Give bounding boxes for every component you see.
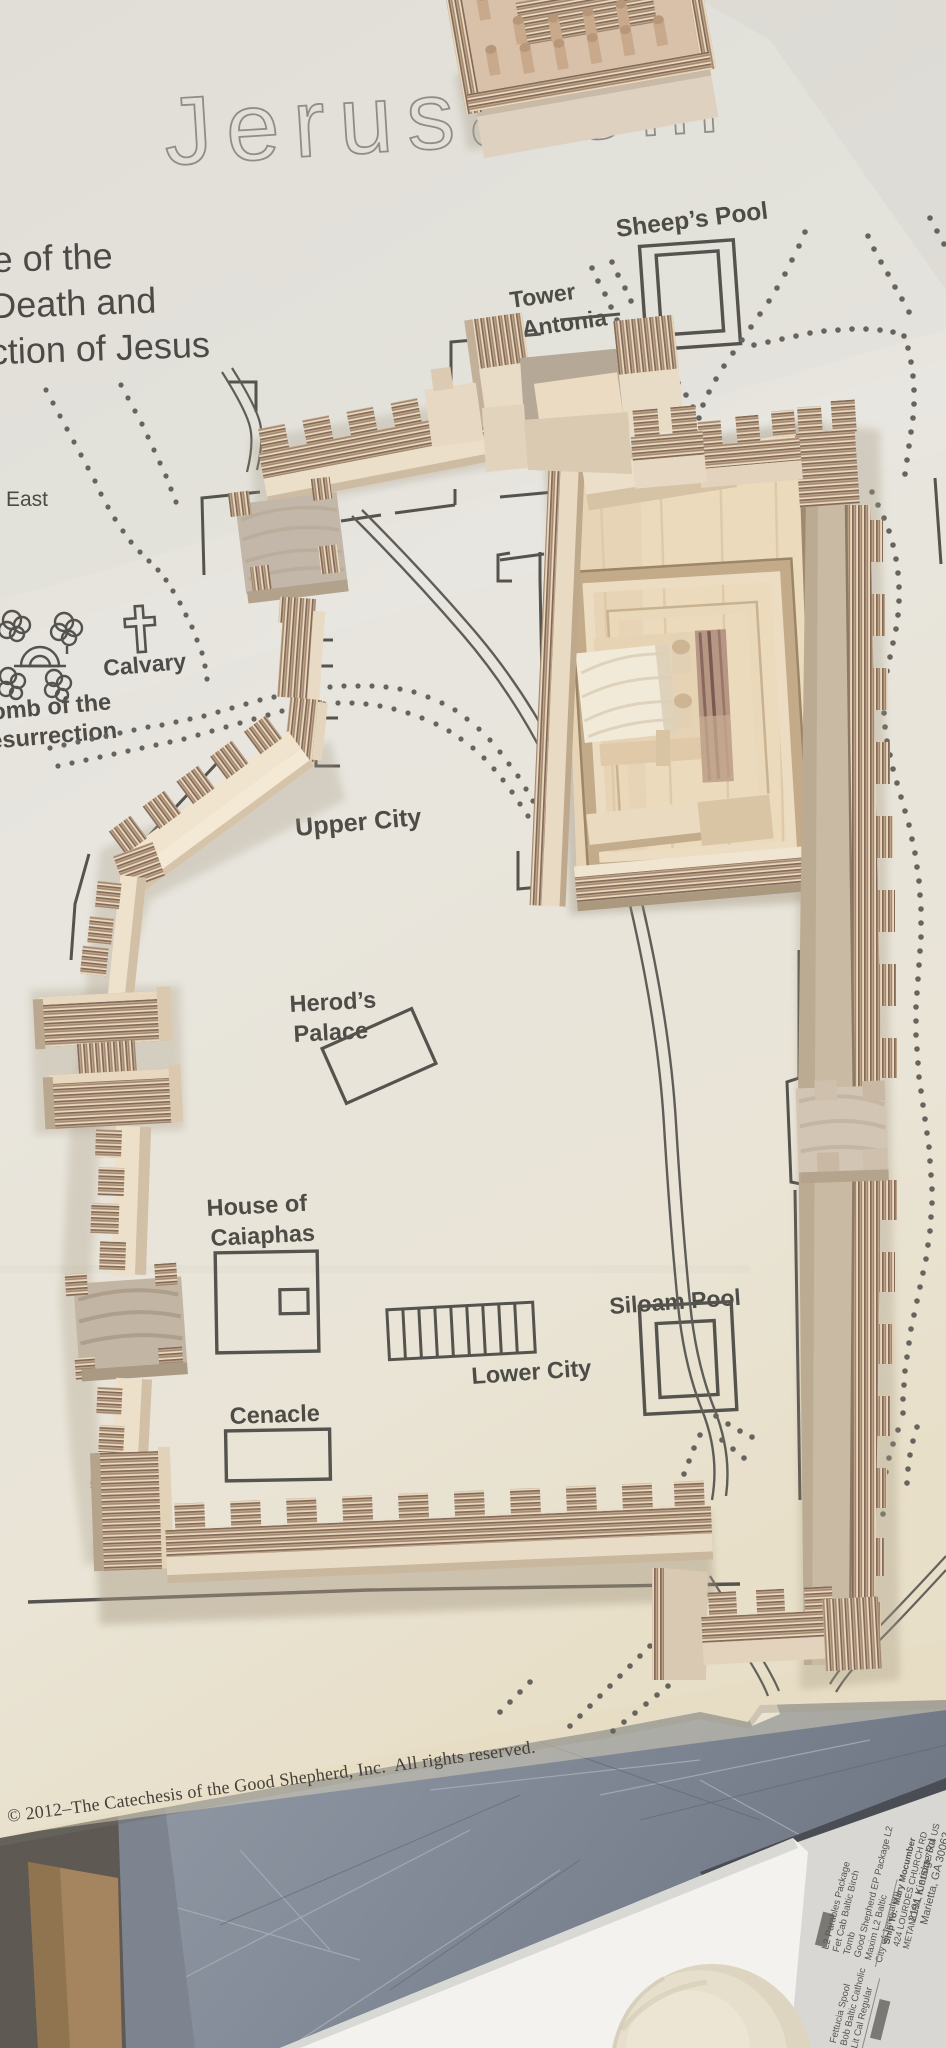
svg-text:House of: House of bbox=[206, 1190, 308, 1221]
svg-text:Cenacle: Cenacle bbox=[229, 1400, 320, 1429]
svg-text:Caiaphas: Caiaphas bbox=[210, 1220, 316, 1251]
svg-text:East: East bbox=[6, 488, 48, 511]
svg-text:e of the: e of the bbox=[0, 235, 113, 280]
svg-text:Herod’s: Herod’s bbox=[289, 986, 377, 1016]
svg-text:Death and: Death and bbox=[0, 280, 157, 327]
svg-text:ction of Jesus: ction of Jesus bbox=[0, 324, 211, 373]
